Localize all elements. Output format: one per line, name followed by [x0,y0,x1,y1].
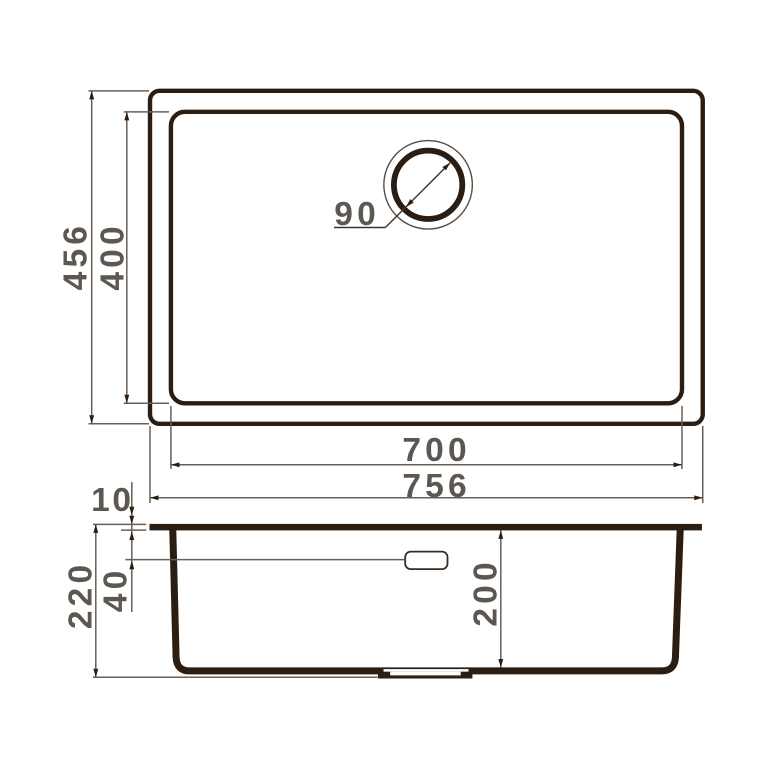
svg-text:40: 40 [98,567,135,613]
svg-text:700: 700 [402,432,471,469]
svg-text:400: 400 [95,222,132,291]
svg-text:220: 220 [63,561,100,630]
svg-text:456: 456 [58,222,95,291]
svg-text:90: 90 [334,196,380,233]
svg-text:756: 756 [402,468,471,505]
svg-text:10: 10 [91,482,133,519]
svg-text:200: 200 [468,558,505,627]
